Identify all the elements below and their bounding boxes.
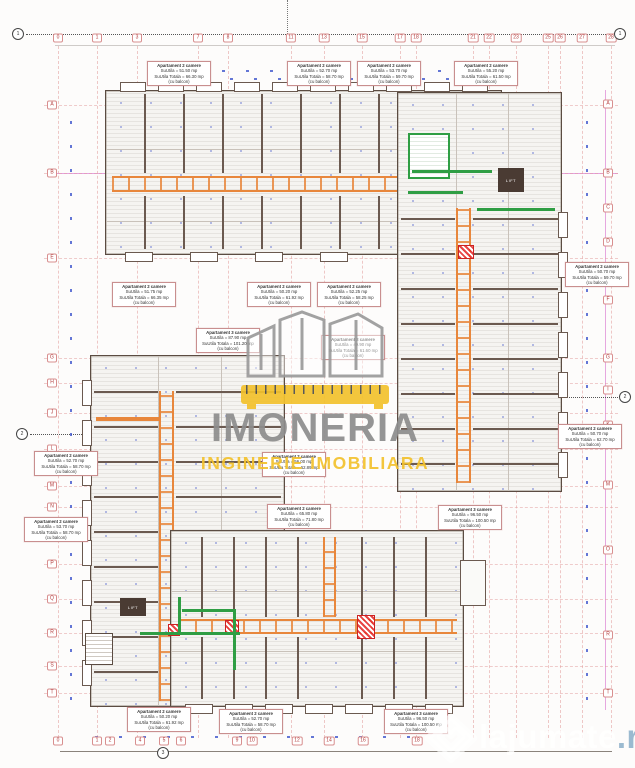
apartment-label: Apartament 3 camereSuUtila = 96.50 mpSuU… — [438, 505, 502, 530]
grid-line-vertical — [58, 46, 59, 738]
bottom-wing-floorplan — [170, 530, 464, 707]
grid-bubble-top: 15 — [357, 34, 368, 43]
grid-bubble-bottom: 0 — [53, 737, 63, 746]
floorplan-drawing: LIFT — [0, 0, 635, 768]
grid-bubble-top: 11 — [286, 34, 296, 43]
grid-bubble-right: T — [603, 689, 613, 698]
grid-bubble-left: M — [47, 482, 57, 491]
section-marker: 2 — [16, 428, 28, 440]
grid-bubble-left: G — [47, 354, 57, 363]
grid-bubble-left: P — [47, 560, 57, 569]
lift-right-wing: LIFT — [498, 168, 524, 192]
grid-bubble-top: 1 — [92, 34, 102, 43]
apartment-label: Apartament 2 camereSuUtila = 50.20 mpSuU… — [247, 282, 311, 307]
apartment-label-line: (cu balcon) — [26, 535, 86, 540]
section-marker: 1 — [614, 28, 626, 40]
imoneria-watermark: IMONERIA INGINERIE IMOBILIARA — [150, 310, 480, 474]
apartment-label: Apartament 2 camereSuUtila = 51.75 mpSuU… — [112, 282, 176, 307]
apartment-label: Apartament 2 camereSuUtila = 65.80 mpSuU… — [267, 504, 331, 529]
apartment-label-line: (cu balcon) — [440, 523, 500, 528]
apartment-label-line: (cu balcon) — [567, 280, 627, 285]
grid-bubble-left: R — [47, 629, 57, 638]
grid-bubble-top: 23 — [511, 34, 522, 43]
grid-bubble-left: H — [47, 379, 57, 388]
apartment-label: Apartament 2 camereSuUtila = 52.70 mpSuU… — [219, 709, 283, 734]
grid-bubble-top: 26 — [555, 34, 566, 43]
grid-bubble-bottom: 18 — [412, 737, 423, 746]
grid-bubble-top: 25 — [543, 34, 554, 43]
grid-bubble-left: B — [47, 169, 57, 178]
grid-bubble-bottom: 12 — [292, 737, 303, 746]
grid-bubble-top: 0 — [53, 34, 63, 43]
apartment-label: Apartament 2 camereSuUtila = 51.50 mpSuU… — [147, 61, 211, 86]
apartment-label-line: (cu balcon) — [319, 300, 379, 305]
apartment-label-line: (cu balcon) — [36, 469, 96, 474]
grid-bubble-right: D — [603, 238, 613, 247]
grid-bubble-bottom: 6 — [176, 737, 186, 746]
apartment-label: Apartament 2 camereSuUtila = 50.70 mpSuU… — [565, 262, 629, 287]
grid-bubble-right: G — [603, 354, 613, 363]
grid-bubble-right: C — [603, 204, 613, 213]
grid-bubble-top: 27 — [577, 34, 588, 43]
grid-bubble-right: B — [603, 169, 613, 178]
apartment-label: Apartament 2 camereSuUtila = 53.70 mpSuU… — [24, 517, 88, 542]
apartment-label-line: (cu balcon) — [249, 300, 309, 305]
grid-bubble-top: 8 — [223, 34, 233, 43]
grid-bubble-left: E — [47, 254, 57, 263]
apartment-label-line: (cu balcon) — [114, 300, 174, 305]
section-marker: 2 — [619, 391, 631, 403]
section-marker: 1 — [12, 28, 24, 40]
apartment-label: Apartament 2 camereSuUtila = 52.70 mpSuU… — [287, 61, 351, 86]
grid-bubble-bottom: 2 — [105, 737, 115, 746]
grid-bubble-left: S — [47, 662, 57, 671]
grid-bubble-left: J — [47, 409, 57, 418]
grid-bubble-right: I — [603, 386, 613, 395]
apartment-label: Apartament 2 camereSuUtila = 50.70 mpSuU… — [558, 424, 622, 449]
ruler-icon — [241, 385, 389, 404]
apartment-label-line: (cu balcon) — [359, 79, 419, 84]
grid-bubble-bottom: 9 — [232, 737, 242, 746]
lajumate-watermark: lajumate.ro — [423, 710, 635, 768]
grid-bubble-right: R — [603, 631, 613, 640]
grid-bubble-left: A — [47, 101, 57, 110]
grid-bubble-bottom: 4 — [135, 737, 145, 746]
grid-bubble-top: 3 — [132, 34, 142, 43]
section-marker: 3 — [157, 747, 169, 759]
grid-bubble-left: Q — [47, 595, 57, 604]
apartment-label-line: (cu balcon) — [149, 79, 209, 84]
grid-bubble-bottom: 14 — [324, 737, 335, 746]
apartment-label: Apartament 2 camereSuUtila = 55.20 mpSuU… — [454, 61, 518, 86]
grid-bubble-bottom: 1 — [92, 737, 102, 746]
grid-bubble-right: F — [603, 296, 613, 305]
grid-bubble-bottom: 5 — [159, 737, 169, 746]
corridor-bottom-wing-branch — [323, 537, 336, 617]
grid-bubble-right: M — [603, 481, 613, 490]
grid-bubble-top: 21 — [468, 34, 479, 43]
grid-bubble-right: O — [603, 546, 613, 555]
apartment-label: Apartament 2 camereSuUtila = 53.70 mpSuU… — [357, 61, 421, 86]
grid-bubble-left: T — [47, 689, 57, 698]
grid-line-vertical — [582, 46, 583, 738]
apartment-label-line: (cu balcon) — [221, 727, 281, 732]
grid-bubble-bottom: 16 — [358, 737, 369, 746]
stairs-left-wing — [85, 633, 113, 665]
grid-bubble-top: 18 — [411, 34, 422, 43]
buildings-logo-icon — [240, 310, 390, 380]
grid-bubble-bottom: 10 — [247, 737, 258, 746]
lajumate-text: lajumate.ro — [479, 718, 635, 756]
apartment-label-line: (cu balcon) — [129, 725, 189, 730]
grid-bubble-top: 22 — [484, 34, 495, 43]
grid-bubble-top: 17 — [395, 34, 406, 43]
watermark-brand: IMONERIA — [150, 406, 480, 451]
section-line-left — [30, 434, 90, 435]
shaft-right-wing — [458, 245, 474, 259]
balcony-bottom-right — [460, 560, 486, 606]
apartment-label: Apartament 2 camereSuUtila = 52.25 mpSuU… — [317, 282, 381, 307]
grid-bubble-top: 7 — [193, 34, 203, 43]
reference-line-right — [605, 90, 606, 710]
grid-bubble-top: 13 — [319, 34, 330, 43]
apartment-label: Apartament 2 camereSuUtila = 50.20 mpSuU… — [127, 707, 191, 732]
section-line-top-vertical — [287, 0, 288, 34]
lift-left-wing: LIFT — [120, 598, 146, 616]
apartment-label-line: (cu balcon) — [289, 79, 349, 84]
apartment-label: Apartament 2 camereSuUtila = 52.70 mpSuU… — [34, 451, 98, 476]
lift-label: LIFT — [128, 605, 138, 610]
grid-bubble-left: N — [47, 503, 57, 512]
grid-bubble-right: A — [603, 100, 613, 109]
lift-label: LIFT — [506, 178, 516, 183]
apartment-label-line: (cu balcon) — [560, 442, 620, 447]
apartment-label-line: (cu balcon) — [456, 79, 516, 84]
watermark-tagline: INGINERIE IMOBILIARA — [150, 453, 480, 474]
lift-shaft-bottom-wing — [357, 615, 375, 639]
lajumate-logo-icon — [423, 710, 479, 768]
apartment-label-line: (cu balcon) — [269, 522, 329, 527]
